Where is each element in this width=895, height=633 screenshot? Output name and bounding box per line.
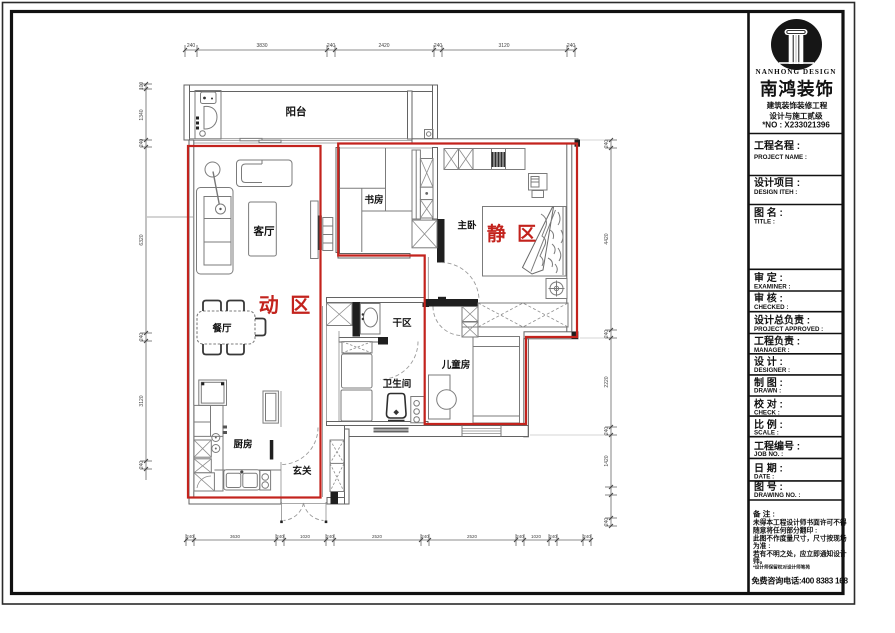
svg-text:240: 240 xyxy=(434,43,443,49)
svg-text:3120: 3120 xyxy=(498,43,509,49)
svg-text:SCALE :: SCALE : xyxy=(754,430,779,437)
svg-text:若有不明之处，应立即通知设计: 若有不明之处，应立即通知设计 xyxy=(753,549,847,558)
svg-text:*NO : X233021396: *NO : X233021396 xyxy=(762,121,830,130)
svg-text:PROJECT NAME :: PROJECT NAME : xyxy=(754,154,807,161)
svg-text:TITLE :: TITLE : xyxy=(754,219,775,226)
svg-text:240: 240 xyxy=(421,534,429,539)
svg-text:干区: 干区 xyxy=(392,318,412,329)
svg-text:240: 240 xyxy=(187,43,196,49)
svg-text:图 名 :: 图 名 : xyxy=(754,206,783,219)
svg-text:阳台: 阳台 xyxy=(286,105,307,118)
svg-text:设计项目 :: 设计项目 : xyxy=(754,176,800,189)
svg-text:儿童房: 儿童房 xyxy=(441,359,471,371)
svg-text:工程名程 :: 工程名程 : xyxy=(754,139,800,152)
svg-text:1020: 1020 xyxy=(531,534,542,539)
svg-text:3630: 3630 xyxy=(230,534,241,539)
svg-text:动 区: 动 区 xyxy=(259,294,314,317)
svg-text:厨房: 厨房 xyxy=(233,439,252,451)
svg-text:卫生间: 卫生间 xyxy=(383,378,412,390)
svg-text:240: 240 xyxy=(604,427,610,436)
svg-text:240: 240 xyxy=(186,534,194,539)
svg-text:4420: 4420 xyxy=(604,233,610,244)
svg-text:未得本工程设计师书面许可不得: 未得本工程设计师书面许可不得 xyxy=(753,518,847,527)
svg-text:240: 240 xyxy=(276,534,284,539)
svg-text:240: 240 xyxy=(139,139,145,148)
svg-text:DESIGNER :: DESIGNER : xyxy=(754,367,790,374)
svg-text:审 定 :: 审 定 : xyxy=(754,271,783,284)
svg-text:CHECKED :: CHECKED : xyxy=(754,304,788,311)
svg-text:为准 :: 为准 : xyxy=(753,541,770,550)
svg-text:餐厅: 餐厅 xyxy=(211,323,232,335)
svg-text:DRAWING NO. :: DRAWING NO. : xyxy=(754,492,800,499)
svg-text:设计与施工贰级: 设计与施工贰级 xyxy=(769,111,823,121)
svg-text:240: 240 xyxy=(516,534,524,539)
svg-text:240: 240 xyxy=(604,518,610,527)
svg-text:3830: 3830 xyxy=(256,43,267,49)
svg-text:CHECK :: CHECK : xyxy=(754,410,780,417)
svg-text:DATE :: DATE : xyxy=(754,474,774,481)
svg-text:240: 240 xyxy=(583,534,591,539)
svg-text:2420: 2420 xyxy=(378,43,389,49)
svg-text:240: 240 xyxy=(139,461,145,470)
svg-text:免费咨询电话:400 8383 168: 免费咨询电话:400 8383 168 xyxy=(752,576,849,586)
svg-text:审 核 :: 审 核 : xyxy=(754,292,783,305)
svg-text:书房: 书房 xyxy=(364,194,383,206)
svg-text:240: 240 xyxy=(567,43,576,49)
svg-text:2220: 2220 xyxy=(604,376,610,387)
svg-text:3120: 3120 xyxy=(139,395,145,406)
svg-text:随意将任何部分翻印 :: 随意将任何部分翻印 : xyxy=(753,526,817,535)
svg-text:NANHONG DESIGN: NANHONG DESIGN xyxy=(756,68,837,76)
svg-text:*设计师保留权对设计师笔苑: *设计师保留权对设计师笔苑 xyxy=(753,564,810,571)
svg-text:主卧: 主卧 xyxy=(457,220,477,232)
svg-text:MANAGER :: MANAGER : xyxy=(754,347,790,354)
svg-text:备 注 :: 备 注 : xyxy=(752,509,775,519)
svg-text:240: 240 xyxy=(326,534,334,539)
svg-text:1420: 1420 xyxy=(604,455,610,466)
svg-text:1020: 1020 xyxy=(300,534,311,539)
svg-text:240: 240 xyxy=(327,43,336,49)
svg-text:2520: 2520 xyxy=(372,534,383,539)
svg-text:设计总负责 :: 设计总负责 : xyxy=(754,314,810,327)
svg-text:南鸿装饰: 南鸿装饰 xyxy=(760,79,834,99)
svg-text:静 区: 静 区 xyxy=(487,222,539,245)
svg-text:2520: 2520 xyxy=(467,534,478,539)
svg-text:建筑装饰装修工程: 建筑装饰装修工程 xyxy=(766,100,828,110)
svg-text:DRAWN :: DRAWN : xyxy=(754,388,781,395)
svg-text:PROJECT APPROVED :: PROJECT APPROVED : xyxy=(754,326,823,333)
svg-text:EXAMINER :: EXAMINER : xyxy=(754,284,790,291)
svg-text:1340: 1340 xyxy=(139,109,145,120)
svg-text:6320: 6320 xyxy=(139,234,145,245)
svg-text:此图不作度量尺寸，尺寸按现场: 此图不作度量尺寸，尺寸按现场 xyxy=(753,534,847,543)
svg-text:240: 240 xyxy=(139,333,145,342)
svg-text:100: 100 xyxy=(139,82,145,91)
svg-text:工程负责 :: 工程负责 : xyxy=(754,335,800,348)
svg-text:240: 240 xyxy=(549,534,557,539)
svg-text:客厅: 客厅 xyxy=(253,225,275,238)
svg-text:JOB NO. :: JOB NO. : xyxy=(754,451,783,458)
svg-text:240: 240 xyxy=(604,330,610,339)
svg-text:玄关: 玄关 xyxy=(292,465,312,477)
svg-text:240: 240 xyxy=(604,140,610,149)
svg-text:DESIGN ITEH :: DESIGN ITEH : xyxy=(754,189,797,196)
